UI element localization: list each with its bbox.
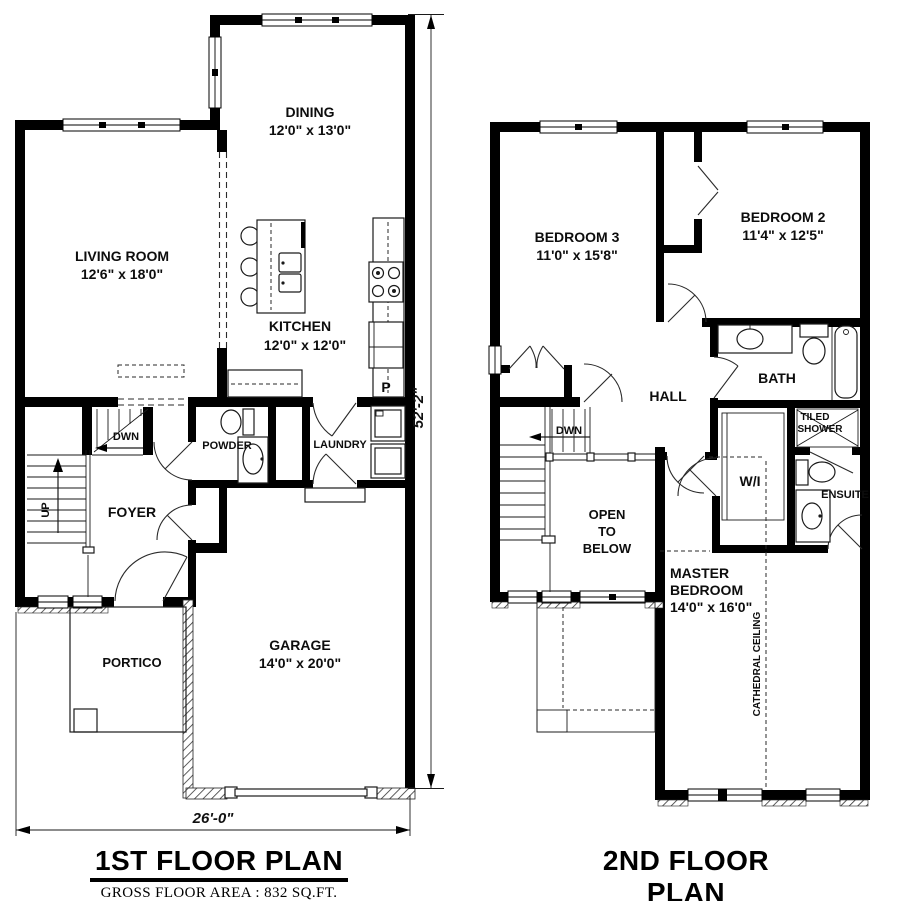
bath-toilet-bowl bbox=[803, 338, 825, 364]
dining-label: DINING bbox=[286, 104, 335, 120]
stair-rail bbox=[83, 450, 94, 597]
garage-label: GARAGE bbox=[269, 637, 330, 653]
open-below-1: OPEN bbox=[589, 507, 626, 522]
f2-up-treads bbox=[500, 445, 545, 540]
second-floor-title: 2ND FLOOR PLAN bbox=[556, 845, 816, 901]
master-dims: 14'0" x 16'0" bbox=[670, 599, 752, 615]
stove bbox=[369, 262, 403, 302]
master-door bbox=[667, 456, 704, 493]
bedroom3-west-window bbox=[489, 346, 501, 374]
portico-post bbox=[74, 709, 97, 732]
bedroom3-dims: 11'0" x 15'8" bbox=[536, 247, 617, 263]
living-room-dims: 12'6" x 18'0" bbox=[81, 266, 163, 282]
second-floor-plan: BEDROOM 3 11'0" x 15'8" BEDROOM 2 11'4" … bbox=[489, 121, 870, 806]
portico-label: PORTICO bbox=[102, 655, 161, 670]
first-floor-plan: 52'-2" 26'-0" LIVING ROOM 12'6" x 18'0" … bbox=[15, 14, 444, 836]
ensuite-toilet-bowl bbox=[809, 462, 835, 482]
f2-bath-fixtures bbox=[718, 324, 857, 400]
dryer bbox=[371, 444, 405, 478]
floor-plan-page: 52'-2" 26'-0" LIVING ROOM 12'6" x 18'0" … bbox=[0, 0, 900, 901]
bath-toilet-tank bbox=[800, 324, 828, 337]
f1-garage-door bbox=[225, 787, 377, 798]
walkin-shelf bbox=[722, 413, 784, 520]
width-dimension: 26'-0" bbox=[192, 810, 235, 827]
foyer-label: FOYER bbox=[108, 504, 156, 520]
f2-stair-down-label: DWN bbox=[556, 425, 582, 437]
bedroom2-top-window bbox=[747, 121, 823, 133]
laundry-label: LAUNDRY bbox=[313, 439, 367, 451]
cathedral-ceiling-label: CATHEDRAL CEILING bbox=[752, 611, 763, 716]
dining-west-window bbox=[209, 37, 221, 108]
master-label-2: BEDROOM bbox=[670, 582, 743, 598]
stool bbox=[241, 227, 259, 245]
f1-labels: LIVING ROOM 12'6" x 18'0" DINING 12'0" x… bbox=[40, 104, 391, 671]
garage-roof-outline bbox=[537, 602, 655, 732]
bedroom3-closet-doors bbox=[509, 346, 564, 369]
second-floor-title-block: 2ND FLOOR PLAN GROSS FLOOR AREA : 898 SQ… bbox=[556, 845, 816, 901]
bedroom2-dims: 11'4" x 12'5" bbox=[742, 227, 823, 243]
height-dimension: 52'-2" bbox=[410, 387, 427, 429]
f2-door-openings bbox=[709, 357, 719, 398]
bedroom3-label: BEDROOM 3 bbox=[535, 229, 620, 245]
first-floor-area: GROSS FLOOR AREA : 832 SQ.FT. bbox=[89, 885, 349, 901]
stool bbox=[241, 258, 259, 276]
ensuite-label: ENSUITE bbox=[821, 489, 869, 501]
open-below-2: TO bbox=[598, 524, 616, 539]
open-below-3: BELOW bbox=[583, 541, 632, 556]
garage-step bbox=[305, 488, 365, 502]
bathtub bbox=[835, 326, 857, 398]
first-floor-title-block: 1ST FLOOR PLAN GROSS FLOOR AREA : 832 SQ… bbox=[89, 845, 349, 901]
stair-down-label: DWN bbox=[113, 431, 139, 443]
shower-label-1: TILED bbox=[801, 412, 830, 423]
closet-door bbox=[157, 505, 192, 540]
floor-plan-drawing: 52'-2" 26'-0" LIVING ROOM 12'6" x 18'0" … bbox=[0, 0, 900, 901]
first-floor-title: 1ST FLOOR PLAN bbox=[90, 845, 348, 882]
garage-west-wall bbox=[183, 600, 193, 798]
pantry-label: P bbox=[381, 379, 390, 395]
garage-south-wall-right bbox=[377, 788, 415, 799]
kitchen-label: KITCHEN bbox=[269, 318, 331, 334]
kitchen-dims: 12'0" x 12'0" bbox=[264, 337, 346, 353]
bath-label: BATH bbox=[758, 370, 796, 386]
powder-door bbox=[154, 442, 192, 480]
stair-up-arrow bbox=[53, 458, 63, 533]
living-room-window bbox=[63, 119, 180, 131]
f2-roof-lines bbox=[537, 457, 766, 787]
bath-sink bbox=[737, 329, 763, 349]
bedroom2-door bbox=[668, 284, 706, 322]
stair-up-label: UP bbox=[40, 502, 52, 517]
ensuite-toilet-tank bbox=[796, 460, 808, 485]
garage-south-wall-left bbox=[186, 788, 227, 799]
living-room-label: LIVING ROOM bbox=[75, 248, 169, 264]
bedroom3-door bbox=[584, 364, 622, 402]
walkin-label: W/I bbox=[740, 473, 761, 489]
stool bbox=[241, 288, 259, 306]
master-label-1: MASTER bbox=[670, 565, 729, 581]
shower-label-2: SHOWER bbox=[798, 424, 844, 435]
f1-kitchen-fixtures bbox=[228, 218, 404, 397]
toilet-bowl bbox=[221, 410, 241, 434]
dining-dims: 12'0" x 13'0" bbox=[269, 122, 351, 138]
bedroom2-label: BEDROOM 2 bbox=[741, 209, 826, 225]
front-door bbox=[115, 552, 187, 601]
bedroom3-top-window bbox=[540, 121, 617, 133]
ensuite-door bbox=[828, 515, 862, 549]
dining-top-window bbox=[262, 14, 372, 26]
bedroom2-closet-doors bbox=[698, 166, 718, 215]
garage-dims: 14'0" x 20'0" bbox=[259, 655, 341, 671]
powder-label: POWDER bbox=[202, 440, 252, 452]
toilet-tank bbox=[243, 409, 254, 435]
hall-label: HALL bbox=[649, 388, 687, 404]
